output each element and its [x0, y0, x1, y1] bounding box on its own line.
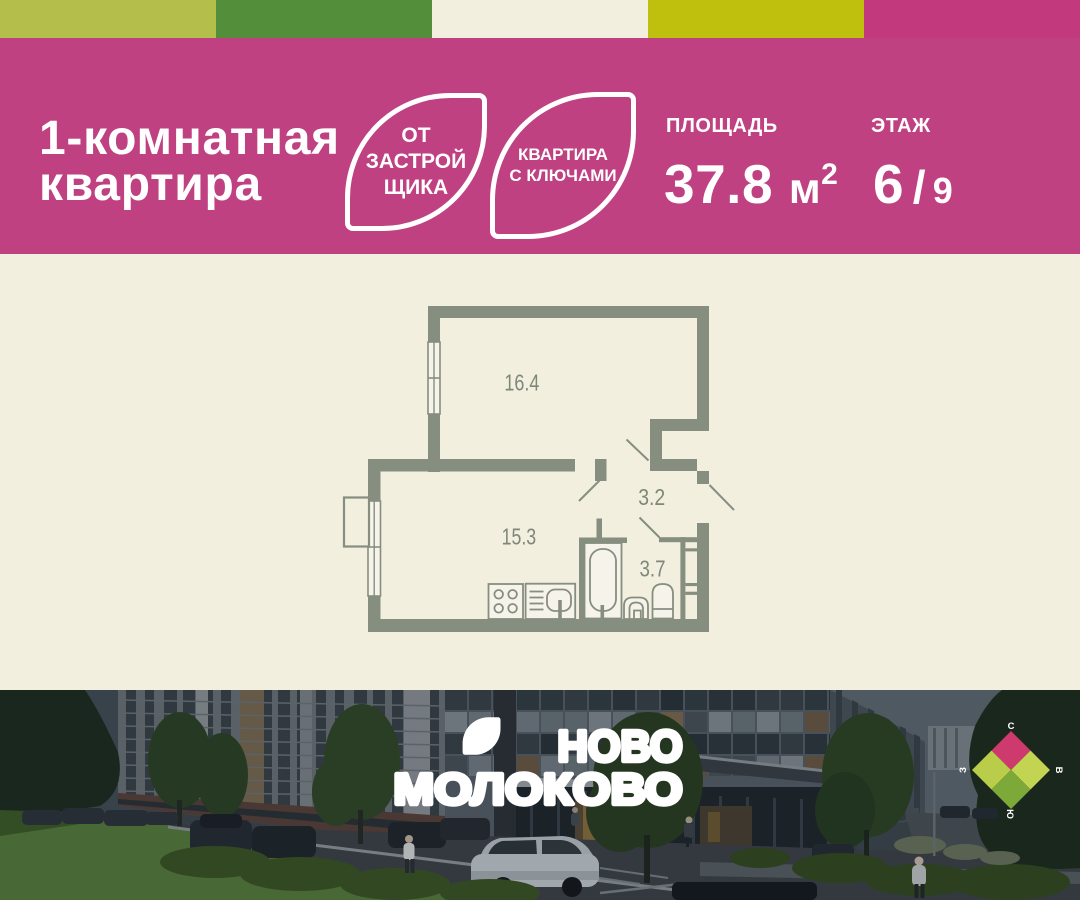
- svg-text:С: С: [1008, 721, 1015, 732]
- svg-text:В: В: [1053, 767, 1064, 774]
- svg-text:16.4: 16.4: [504, 369, 539, 395]
- svg-text:3.7: 3.7: [640, 555, 666, 581]
- svg-text:15.3: 15.3: [502, 523, 537, 549]
- svg-text:З: З: [958, 767, 969, 773]
- svg-text:Ю: Ю: [1004, 809, 1015, 819]
- svg-text:МОЛОКОВО: МОЛОКОВО: [394, 765, 683, 814]
- svg-text:3.2: 3.2: [638, 484, 665, 510]
- svg-text:НОВО: НОВО: [558, 722, 683, 771]
